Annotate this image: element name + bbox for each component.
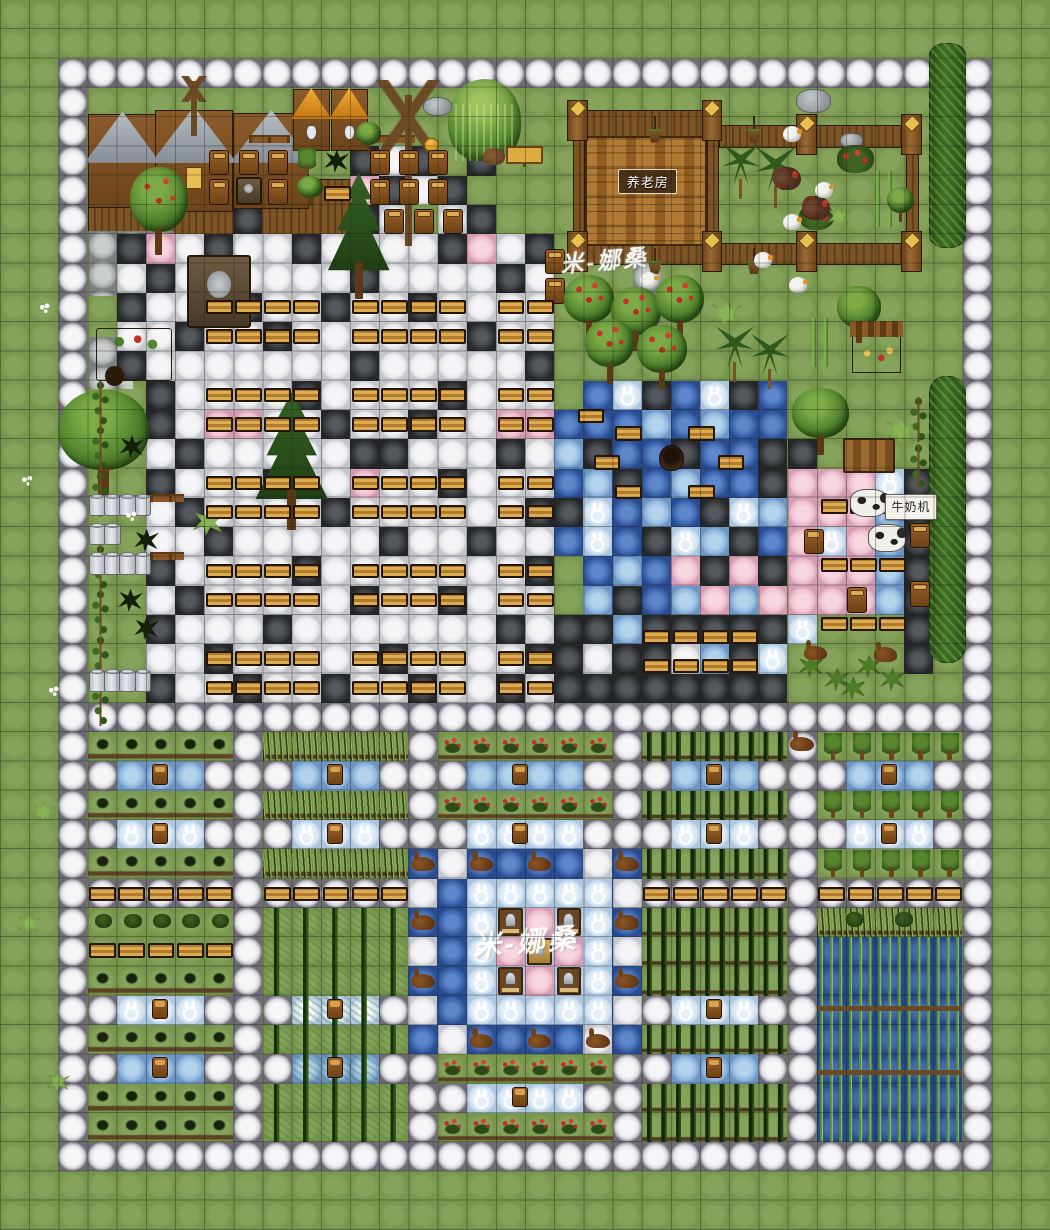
bench-object: [731, 630, 758, 645]
bench-object: [206, 417, 233, 432]
tile-region-white: [438, 1025, 467, 1054]
bench-object: [498, 300, 525, 315]
can-object: [104, 524, 121, 545]
can-object: [89, 524, 106, 545]
fenceH-object: [249, 135, 290, 142]
duck-object: [783, 126, 801, 142]
milk-machine-label: 牛奶机: [885, 494, 937, 519]
tile-region-lblue: [583, 469, 612, 498]
tile-region-stone: [58, 1142, 991, 1171]
bench-object: [410, 681, 437, 696]
tile-region-stone: [583, 1084, 612, 1113]
bushS-object: [212, 914, 230, 929]
sign-object: [506, 146, 543, 164]
palm-object: [716, 327, 754, 383]
tile-region-stone: [933, 820, 962, 849]
barrel-object: [152, 1057, 169, 1078]
vine-object: [904, 444, 933, 489]
flowerwhite-object: [47, 685, 62, 698]
barrel-object: [512, 1087, 529, 1108]
keg-object: [804, 529, 824, 554]
bench-object: [498, 564, 525, 579]
tile-region-dark: [175, 439, 204, 468]
tile-region-dark: [700, 556, 729, 585]
bushS-object: [153, 914, 171, 929]
bamboo-object: [808, 318, 837, 368]
tile-region-stone: [204, 820, 233, 849]
bench-object: [615, 426, 642, 441]
bench-object: [439, 593, 466, 608]
tile-region-dark: [758, 439, 787, 468]
potted-object: [882, 791, 900, 818]
potted-object: [853, 733, 871, 760]
bench-object: [527, 417, 554, 432]
feeder-object: [646, 116, 664, 145]
tile-region-stone: [88, 1054, 117, 1083]
tile-region-wheat: [263, 732, 409, 761]
tile-region-bunny: [583, 527, 612, 556]
barrel-object: [327, 764, 344, 785]
barrel-object: [881, 764, 898, 785]
potted-object: [824, 850, 842, 877]
bench-object: [410, 388, 437, 403]
barrel-object: [512, 823, 529, 844]
bench-object: [235, 476, 262, 491]
tile-region-dark: [496, 615, 525, 644]
bench-object: [731, 659, 758, 674]
fern-object: [879, 668, 905, 691]
tile-region-stone: [963, 88, 992, 1142]
palm-object: [722, 144, 760, 200]
tile-region-dark: [263, 615, 292, 644]
tile-region-stone: [379, 761, 408, 790]
post-object: [901, 231, 921, 272]
tile-region-dark: [379, 527, 408, 556]
post-object: [796, 231, 816, 272]
keg-object: [399, 150, 419, 175]
bench-object: [235, 417, 262, 432]
tile-region-dark: [496, 264, 525, 293]
bench-object: [410, 564, 437, 579]
bench-object: [410, 417, 437, 432]
tile-region-lblue: [613, 556, 642, 585]
duck-object: [815, 182, 833, 198]
bench-object: [352, 476, 379, 491]
bench-object: [439, 300, 466, 315]
bench-object: [206, 505, 233, 520]
bench-object: [935, 887, 962, 902]
bench-object: [527, 300, 554, 315]
tile-region-stone: [758, 820, 787, 849]
tile-region-stone: [642, 761, 671, 790]
mill-object: [293, 89, 330, 151]
turkey-object: [802, 196, 830, 219]
bench-object: [264, 476, 291, 491]
fern-object: [840, 677, 866, 700]
cow-object: [868, 524, 906, 552]
vine-object: [86, 381, 115, 426]
tile-region-dark: [758, 556, 787, 585]
can-object: [104, 671, 121, 692]
bench-object: [410, 329, 437, 344]
bench-object: [439, 476, 466, 491]
fenceH-object: [150, 552, 184, 560]
tile-region-stone: [204, 996, 233, 1025]
tile-region-flower: [438, 732, 613, 761]
barrel-object: [327, 823, 344, 844]
cypress-object: [929, 376, 966, 663]
bench-object: [264, 417, 291, 432]
bench-object: [439, 388, 466, 403]
tile-region-corn: [642, 1025, 788, 1054]
bench-object: [264, 329, 291, 344]
bench-object: [731, 887, 758, 902]
duck-object: [640, 272, 658, 288]
tile-region-seed: [88, 732, 234, 761]
tile-region-stone: [642, 820, 671, 849]
tile-region-stone: [758, 996, 787, 1025]
potted-object: [941, 733, 959, 760]
potted-object: [298, 148, 316, 175]
bench-object: [527, 564, 554, 579]
tile-region-stone: [438, 761, 467, 790]
tile-region-corn: [642, 1084, 788, 1143]
tile-region-wheat: [263, 849, 409, 878]
bench-object: [264, 887, 291, 902]
tile-region-paddy: [817, 937, 963, 1142]
vine-object: [904, 397, 933, 442]
tile-region-seed: [88, 849, 234, 878]
bench-object: [264, 651, 291, 666]
can-object: [135, 671, 152, 692]
tile-region-dark: [613, 586, 642, 615]
bench-object: [235, 681, 262, 696]
treeA-object: [585, 319, 635, 383]
bench-object: [643, 887, 670, 902]
bench-object: [498, 329, 525, 344]
tile-region-dark: [146, 410, 175, 439]
tile-region-dark: [700, 498, 729, 527]
tile-region-stone: [642, 996, 671, 1025]
barrel-object: [706, 764, 723, 785]
bench-object: [818, 887, 845, 902]
flowerwhite-object: [124, 510, 139, 523]
barrel-object: [881, 823, 898, 844]
rabbit-object: [615, 915, 638, 930]
bench-object: [410, 476, 437, 491]
tile-region-lblue: [642, 410, 671, 439]
tile-region-lblue: [700, 527, 729, 556]
bench-object: [879, 617, 906, 632]
tile-region-stone: [583, 820, 612, 849]
bench-object: [702, 659, 729, 674]
tile-region-flower: [438, 791, 613, 820]
barrel-object: [706, 823, 723, 844]
potted-object: [824, 733, 842, 760]
tile-region-stone: [379, 820, 408, 849]
bench-object: [352, 329, 379, 344]
barrel-object: [512, 764, 529, 785]
bench-object: [439, 329, 466, 344]
tile-region-lblue: [554, 439, 583, 468]
bench-object: [323, 887, 350, 902]
post-object: [702, 100, 722, 141]
tile-region-seed: [88, 1025, 234, 1054]
potted-object: [912, 850, 930, 877]
bushS-object: [846, 912, 864, 927]
tile-region-white: [613, 937, 642, 966]
tile-region-dark: [467, 205, 496, 234]
bench-object: [381, 564, 408, 579]
bench-object: [381, 681, 408, 696]
bench-object: [718, 455, 745, 470]
tile-region-dark: [379, 439, 408, 468]
turkey-object: [773, 167, 801, 190]
keg-object: [370, 150, 390, 175]
tile-region-white: [408, 879, 437, 908]
bench-object: [293, 681, 320, 696]
tile-region-stone: [88, 703, 963, 732]
bench-object: [148, 943, 175, 958]
bench-object: [381, 593, 408, 608]
bench-object: [673, 630, 700, 645]
redbush-object: [837, 145, 874, 173]
bin-object: [843, 438, 896, 473]
tile-region-flower: [438, 1113, 613, 1142]
bushS-object: [124, 914, 142, 929]
tile-region-stone: [758, 1054, 787, 1083]
rabbit-object: [790, 737, 813, 752]
tile-region-stone: [379, 996, 408, 1025]
tile-region-dark: [525, 351, 554, 380]
bench-object: [821, 617, 848, 632]
bench-object: [877, 887, 904, 902]
tile-region-white: [438, 849, 467, 878]
bench-object: [498, 505, 525, 520]
bench-object: [352, 593, 379, 608]
tile-region-seed: [88, 1084, 234, 1113]
bench-object: [352, 887, 379, 902]
barrel-object: [706, 999, 723, 1020]
tile-region-dark: [496, 439, 525, 468]
tile-region-stone: [204, 1054, 233, 1083]
tile-region-stone: [933, 761, 962, 790]
rock-object: [796, 89, 831, 112]
can-object: [119, 554, 136, 575]
bench-object: [293, 593, 320, 608]
cart-object: [96, 328, 172, 381]
bench-object: [264, 505, 291, 520]
rabbit-object: [615, 974, 638, 989]
tile-region-bunny: [758, 644, 787, 673]
tile-region-lblue: [729, 586, 758, 615]
tile-region-soil: [817, 1070, 963, 1075]
tile-region-wall: [707, 135, 719, 246]
tile-region-dark: [729, 527, 758, 556]
bench-object: [206, 564, 233, 579]
bench-object: [527, 476, 554, 491]
bench-object: [381, 887, 408, 902]
keg-object: [268, 150, 288, 175]
tile-region-dark: [642, 527, 671, 556]
bench-object: [821, 558, 848, 573]
bench-object: [206, 681, 233, 696]
rabbit-object: [470, 1034, 493, 1049]
tile-region-stone: [233, 732, 262, 1142]
keg-object: [910, 581, 930, 606]
bench-object: [235, 300, 262, 315]
bench-object: [527, 593, 554, 608]
tile-region-stone: [263, 1054, 292, 1083]
feeder-object: [745, 116, 763, 145]
bench-object: [118, 887, 145, 902]
treeG-object: [356, 122, 381, 154]
bench-object: [439, 564, 466, 579]
can-object: [135, 554, 152, 575]
rabbit-object: [528, 1034, 551, 1049]
bench-object: [439, 681, 466, 696]
tile-region-stone: [642, 1054, 671, 1083]
tile-region-corn: [642, 908, 788, 996]
bench-object: [235, 505, 262, 520]
cow-object: [850, 489, 888, 517]
darkplant-object: [324, 149, 349, 172]
barrel-object: [706, 1057, 723, 1078]
tile-region-dark: [467, 322, 496, 351]
rabbit-object: [615, 857, 638, 872]
tile-region-flower: [438, 1054, 613, 1083]
tile-region-stone: [788, 732, 817, 1142]
tile-region-lblue: [642, 498, 671, 527]
bench-object: [293, 329, 320, 344]
bench-object: [578, 409, 605, 424]
tile-region-blueM: [554, 410, 583, 556]
bench-object: [148, 887, 175, 902]
bench-object: [264, 388, 291, 403]
tile-region-pink: [525, 966, 554, 995]
retirement-house-label: 养老房: [618, 169, 677, 194]
tile-region-dark: [292, 234, 321, 263]
keg-object: [414, 209, 434, 234]
keg-object: [428, 150, 448, 175]
dog-object: [483, 148, 505, 166]
bench-object: [89, 943, 116, 958]
bench-object: [673, 659, 700, 674]
tile-region-wheat: [817, 908, 963, 937]
bench-object: [760, 887, 787, 902]
bench-object: [352, 300, 379, 315]
bench-object: [702, 630, 729, 645]
can-object: [104, 495, 121, 516]
tile-region-stone: [817, 820, 846, 849]
bench-object: [206, 388, 233, 403]
tile-region-stone: [88, 996, 117, 1025]
bench-object: [264, 300, 291, 315]
bench-object: [206, 593, 233, 608]
bench-object: [324, 186, 351, 201]
bench-object: [293, 564, 320, 579]
tile-region-stone: [58, 88, 87, 1142]
keg-object: [399, 179, 419, 204]
can-object: [89, 671, 106, 692]
duck-object: [789, 277, 807, 293]
duck-object: [754, 252, 772, 268]
bench-object: [206, 943, 233, 958]
tile-region-wall: [573, 135, 585, 246]
rabbit-object: [411, 915, 434, 930]
rabbit-object: [411, 857, 434, 872]
rabbit-object: [411, 974, 434, 989]
bench-object: [293, 300, 320, 315]
potted-object: [853, 791, 871, 818]
bench-object: [702, 887, 729, 902]
treeG-object: [887, 187, 915, 222]
tile-region-bunny: [583, 498, 612, 527]
tile-region-stone: [204, 761, 233, 790]
bench-object: [848, 887, 875, 902]
bench-object: [850, 558, 877, 573]
tile-region-corn: [642, 791, 788, 820]
tile-region-dark: [350, 439, 379, 468]
bench-object: [381, 417, 408, 432]
bench-object: [264, 564, 291, 579]
bench-object: [235, 564, 262, 579]
tile-region-dark: [321, 674, 350, 703]
bench-object: [381, 388, 408, 403]
farm-map: 养老房 牛奶机 米-娜桑 米-娜桑: [0, 0, 1050, 1230]
bench-object: [293, 476, 320, 491]
tile-region-seed: [88, 791, 234, 820]
bench-object: [410, 300, 437, 315]
deadtree-object: [158, 69, 231, 136]
can-object: [89, 495, 106, 516]
bushS-object: [182, 914, 200, 929]
bell-object: [498, 967, 523, 995]
tile-region-white: [408, 937, 437, 966]
tuft-object: [18, 914, 41, 935]
bench-object: [821, 499, 848, 514]
tile-region-white: [408, 996, 437, 1025]
tile-region-dark: [146, 264, 175, 293]
bench-object: [410, 651, 437, 666]
bench-object: [410, 593, 437, 608]
tile-region-dark: [146, 381, 175, 410]
can-object: [89, 554, 106, 575]
press-object: [236, 177, 262, 205]
bench-object: [527, 388, 554, 403]
tile-region-lblue: [583, 586, 612, 615]
fern-object: [824, 668, 850, 691]
tile-region-bunny: [671, 527, 700, 556]
keg-object: [847, 587, 867, 612]
bushS-object: [95, 914, 113, 929]
rabbit-object: [586, 1034, 609, 1049]
bench-object: [498, 388, 525, 403]
cypress-object: [929, 43, 966, 248]
rock-object: [423, 97, 452, 116]
bench-object: [498, 476, 525, 491]
tile-region-stone: [88, 820, 117, 849]
tile-region-white: [583, 644, 612, 673]
can-object: [104, 554, 121, 575]
bench-object: [527, 681, 554, 696]
bench-object: [206, 476, 233, 491]
bench-object: [527, 651, 554, 666]
bench-object: [235, 593, 262, 608]
bench-object: [381, 476, 408, 491]
bench-object: [177, 943, 204, 958]
keg-object: [384, 209, 404, 234]
